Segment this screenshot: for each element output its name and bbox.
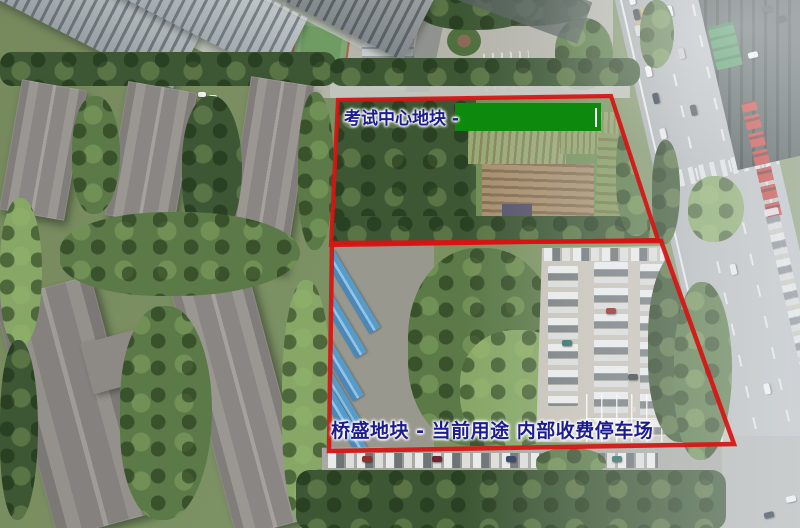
redaction-box xyxy=(455,103,601,131)
plot-outlines xyxy=(0,0,800,528)
exam-plot-label: 考试中心地块 - xyxy=(344,104,459,129)
qiaosheng-plot-label: 桥盛地块 - 当前用途 内部收费停车场 xyxy=(331,416,653,443)
text-cursor xyxy=(595,108,597,127)
aerial-photo: 考试中心地块 - 桥盛地块 - 当前用途 内部收费停车场 xyxy=(0,0,800,528)
